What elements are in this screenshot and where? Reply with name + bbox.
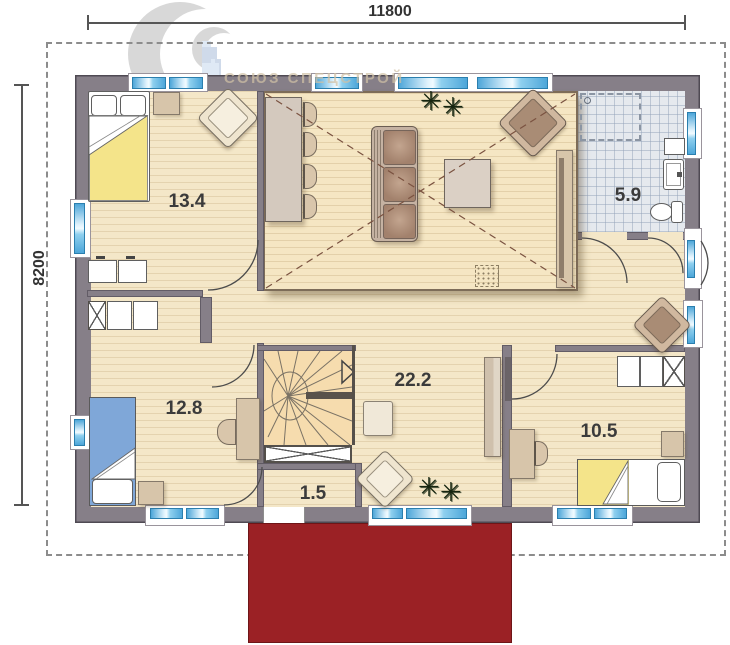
staircase-treads <box>264 351 352 445</box>
bed-blanket-yellow <box>89 115 148 201</box>
entrance-opening <box>263 507 305 523</box>
toilet-tank <box>671 201 683 223</box>
dim-label-width: 11800 <box>368 3 412 21</box>
dresser-handle <box>96 256 105 259</box>
dresser-handle <box>126 256 135 259</box>
stairs-handrail <box>306 392 352 399</box>
nightstand <box>153 92 180 115</box>
room-label-bedroom2: 12.8 <box>166 398 203 420</box>
tv-cabinet-panel <box>559 158 564 278</box>
window-bedroom3-bottom-a <box>557 508 591 519</box>
nightstand <box>661 431 684 457</box>
bathroom-shelf <box>664 138 685 155</box>
nightstand <box>138 481 164 505</box>
shower-head-icon <box>584 97 591 104</box>
wardrobe-door <box>617 356 640 387</box>
pillow <box>120 95 146 116</box>
window-bedroom3-bottom-b <box>594 508 627 519</box>
wardrobe-door-x <box>663 356 685 387</box>
wardrobe-door <box>107 301 132 330</box>
bed-blanket-yellow <box>578 460 629 505</box>
room-label-bathroom: 5.9 <box>615 185 641 207</box>
desk <box>236 398 260 460</box>
window-hall-bottom-a <box>372 508 403 519</box>
window-bedroom1-top-b <box>169 77 203 89</box>
plant-icon: ✳ <box>440 479 462 505</box>
sofa-back-lines <box>374 130 382 238</box>
stool <box>363 401 393 436</box>
wall-under-closet <box>257 463 362 470</box>
window-bedroom2-left <box>74 419 85 446</box>
room-label-bedroom1: 13.4 <box>169 191 206 213</box>
pillow <box>657 462 681 502</box>
window-bathroom-right <box>687 112 696 155</box>
wall-stairs-right-edge <box>352 345 355 445</box>
sink-faucet <box>677 172 682 177</box>
dim-tick-top-left <box>87 15 89 30</box>
sofa-cushion <box>383 167 416 202</box>
door-opening-bathroom <box>582 232 627 240</box>
pillow <box>91 95 117 116</box>
room-label-entry: 1.5 <box>300 483 326 505</box>
room-label-hall: 22.2 <box>395 370 432 392</box>
wardrobe-door <box>133 301 158 330</box>
dim-tick-left-bottom <box>14 504 29 506</box>
wardrobe-door-x <box>88 301 106 330</box>
dim-tick-left-top <box>14 84 29 86</box>
wall-bedroom1-bottom <box>87 290 203 297</box>
wardrobe-door <box>640 356 663 387</box>
floor-hatch-rug <box>475 265 499 287</box>
dining-table <box>265 97 302 222</box>
toilet-bowl <box>650 203 673 221</box>
stairs-direction-arrow-icon <box>342 361 352 383</box>
dresser <box>88 260 117 283</box>
window-living-top-c <box>477 77 548 89</box>
hall-cabinet <box>484 357 501 457</box>
plant-icon: ✳ <box>442 94 464 120</box>
dresser <box>118 260 147 283</box>
sofa-cushion <box>383 204 416 239</box>
door-leaf-bedroom3 <box>505 357 511 401</box>
window-bedroom2-bottom-b <box>186 508 219 519</box>
desk-chair <box>217 419 236 445</box>
closet-under-stairs <box>264 445 352 463</box>
dim-tick-top-right <box>684 15 686 30</box>
wall-bedroom1-living <box>257 91 264 291</box>
room-label-bedroom3: 10.5 <box>581 421 618 443</box>
dim-line-top <box>88 22 685 24</box>
window-hall-right-door <box>687 240 695 278</box>
window-bedroom2-bottom-a <box>150 508 183 519</box>
window-bedroom1-left <box>74 203 85 254</box>
porch <box>248 523 512 643</box>
dim-line-left <box>21 85 23 505</box>
sofa-cushion <box>383 130 416 165</box>
coffee-table <box>444 159 491 208</box>
plant-icon: ✳ <box>420 88 442 114</box>
door-opening-right-exit <box>648 232 683 240</box>
window-bedroom1-top-a <box>132 77 166 89</box>
staircase-floor <box>264 351 352 445</box>
wall-hall-step <box>200 297 212 343</box>
desk <box>509 429 535 479</box>
window-hall-bottom-b <box>406 508 467 519</box>
plant-icon: ✳ <box>418 474 440 500</box>
floor-plan-canvas: 11800 8200 <box>0 0 730 645</box>
mattress <box>92 479 133 504</box>
watermark-brand-text: СОЮЗ СПЕЦСТРОЙ <box>224 70 405 87</box>
